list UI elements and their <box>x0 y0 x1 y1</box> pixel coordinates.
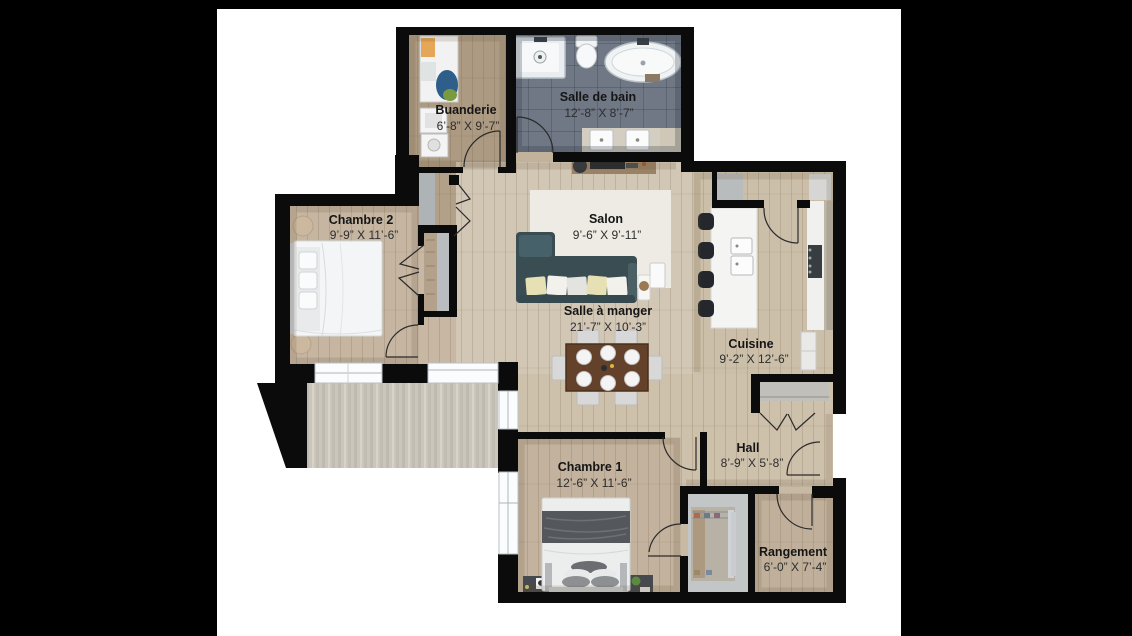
svg-text:12’-6” X 11’-6”: 12’-6” X 11’-6” <box>556 476 631 490</box>
svg-text:Rangement: Rangement <box>759 545 828 559</box>
svg-text:Salle à manger: Salle à manger <box>564 304 652 318</box>
svg-text:Salle de bain: Salle de bain <box>560 90 636 104</box>
svg-text:Chambre 1: Chambre 1 <box>558 460 623 474</box>
svg-text:8’-9” X 5’-8”: 8’-9” X 5’-8” <box>721 456 784 470</box>
svg-text:9’-6” X 9’-11”: 9’-6” X 9’-11” <box>573 228 641 242</box>
svg-text:6’-0” X 7’-4”: 6’-0” X 7’-4” <box>764 560 827 574</box>
svg-text:Chambre 2: Chambre 2 <box>329 213 394 227</box>
svg-text:Cuisine: Cuisine <box>728 337 773 351</box>
svg-text:6’-8” X 9’-7”: 6’-8” X 9’-7” <box>437 119 500 133</box>
svg-text:12’-8” X 8’-7”: 12’-8” X 8’-7” <box>564 106 633 120</box>
svg-text:21’-7” X 10’-3”: 21’-7” X 10’-3” <box>570 320 646 334</box>
svg-text:Hall: Hall <box>737 441 760 455</box>
svg-text:9’-2” X 12’-6”: 9’-2” X 12’-6” <box>719 352 788 366</box>
svg-text:Buanderie: Buanderie <box>435 103 496 117</box>
svg-text:9’-9” X 11’-6”: 9’-9” X 11’-6” <box>330 228 398 242</box>
svg-text:Salon: Salon <box>589 212 623 226</box>
